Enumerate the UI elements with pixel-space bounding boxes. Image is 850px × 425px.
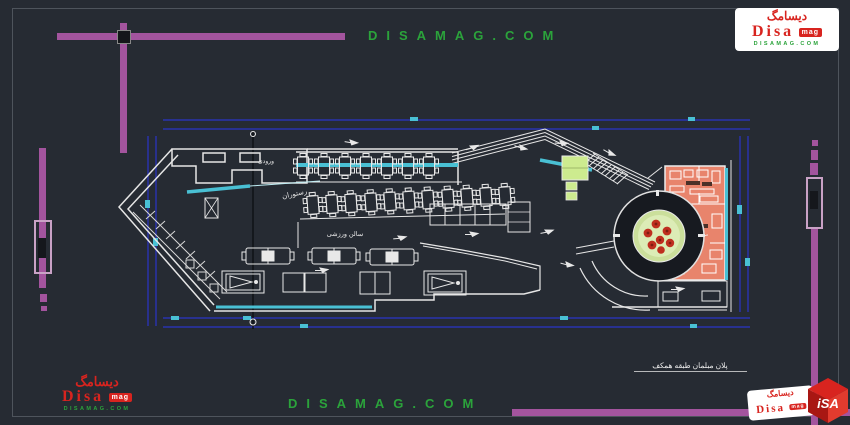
service-room	[658, 281, 727, 307]
logo-site-url: DISAMAG.COM	[57, 406, 137, 413]
logo-mag-badge: mag	[789, 403, 807, 410]
logo-name: Disa	[62, 389, 104, 405]
restaurant-tables-row2	[303, 183, 516, 218]
plan-title-block: پلان مبلمان طبقه همکف	[634, 361, 747, 372]
sports-hall-furniture	[222, 248, 466, 295]
watermark-top: DISAMAG.COM	[368, 28, 562, 43]
cad-screenshot: DISAMAG.COM DISAMAG.COM دیسامگ Disa mag …	[0, 0, 850, 425]
logo-cube-icon: iSA	[806, 376, 850, 424]
logo-persian-text: دیسامگ	[741, 10, 833, 23]
label-sports-hall: سالن ورزشی	[327, 230, 364, 238]
watermark-bottom: DISAMAG.COM	[288, 396, 482, 411]
section-line	[250, 131, 256, 329]
logo-bottom-right-pill: دیسامگ Disa mag	[747, 385, 815, 421]
logo-site-url: DISAMAG.COM	[741, 41, 833, 48]
plan-title: پلان مبلمان طبقه همکف	[652, 361, 727, 370]
logo-top-right: دیسامگ Disa mag DISAMAG.COM	[735, 8, 839, 51]
logo-mag-badge: mag	[799, 28, 822, 37]
circular-planter	[613, 190, 705, 281]
elevator-room	[562, 156, 588, 200]
logo-bottom-left: دیسامگ Disa mag DISAMAG.COM	[57, 375, 137, 413]
svg-text:iSA: iSA	[817, 396, 839, 411]
logo-name: Disa	[752, 24, 794, 40]
logo-mag-badge: mag	[109, 393, 132, 402]
label-entry: ورودی	[258, 159, 274, 165]
logo-name: Disa	[756, 403, 786, 416]
entrance-ramp	[133, 205, 227, 299]
floor-plan-drawing: ورودی رستوران سالن ورزشی پلان مبلمان طبق…	[0, 0, 850, 425]
logo-persian-text: دیسامگ	[57, 375, 137, 388]
